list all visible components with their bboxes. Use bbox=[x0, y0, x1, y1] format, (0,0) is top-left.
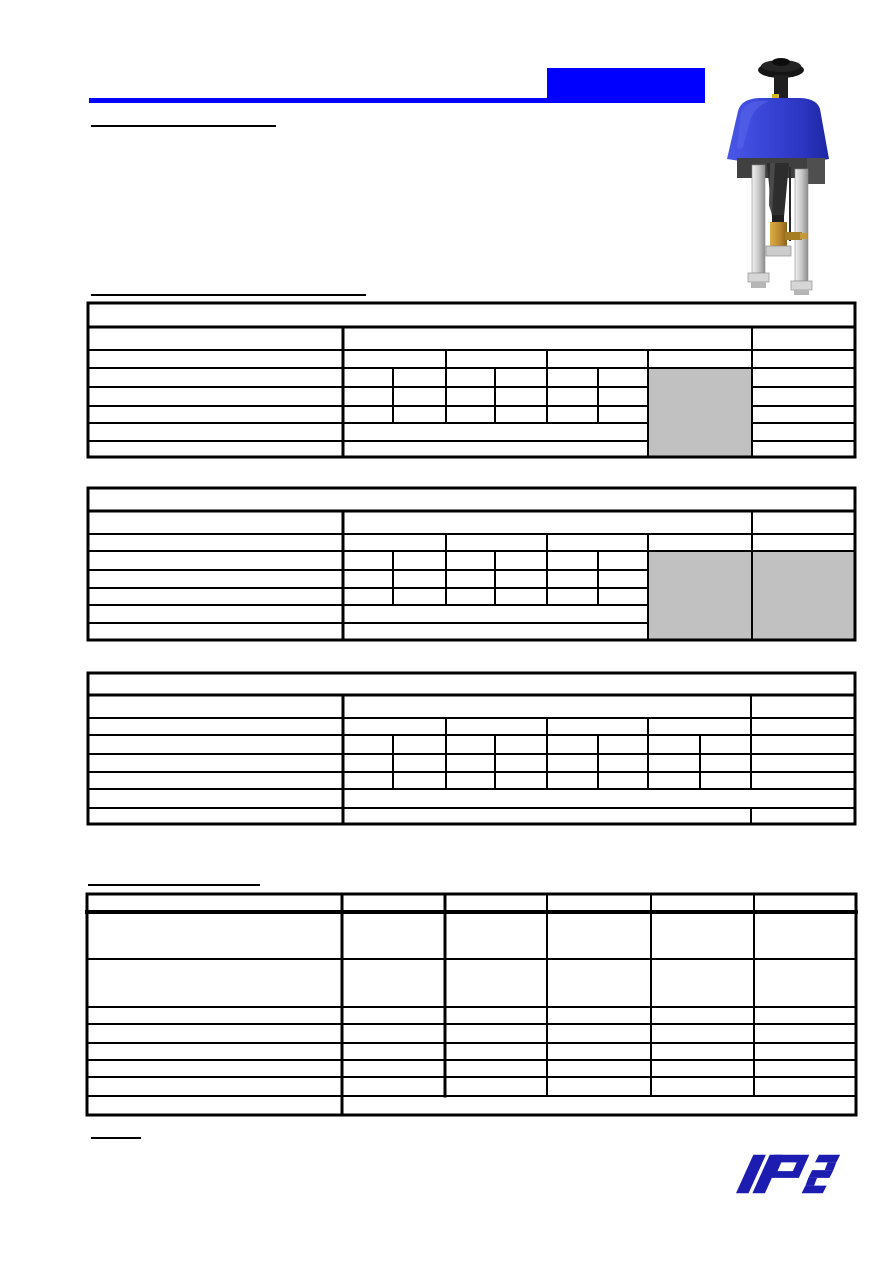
actuator-dome bbox=[727, 98, 829, 164]
product-image-actuator bbox=[725, 55, 831, 295]
actuator-knob bbox=[758, 58, 804, 100]
header-rules bbox=[88, 68, 705, 1139]
company-logo-ps bbox=[736, 1151, 844, 1197]
spec-table-3 bbox=[87, 672, 857, 826]
spec-table-4 bbox=[85, 893, 858, 1117]
spec-table-1 bbox=[87, 302, 857, 459]
datasheet-page bbox=[0, 0, 893, 1263]
logo-letters-ps bbox=[736, 1155, 840, 1194]
spec-table-2 bbox=[87, 487, 857, 642]
